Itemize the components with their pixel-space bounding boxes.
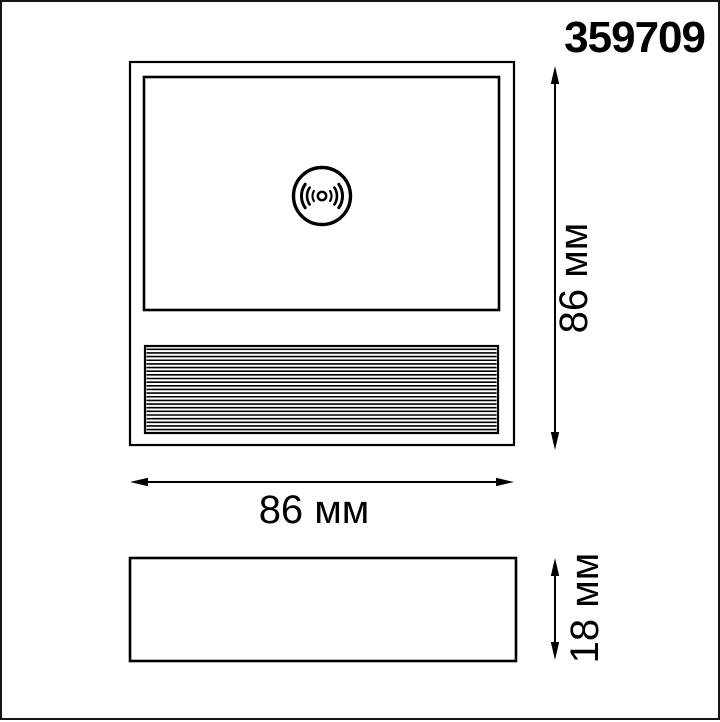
height-arrowhead-bottom bbox=[551, 432, 559, 450]
depth-dimension-arrow bbox=[551, 558, 559, 660]
height-dimension-label: 86 мм bbox=[552, 178, 596, 378]
front-view-inner-panel bbox=[144, 77, 499, 310]
depth-arrowhead-top bbox=[551, 558, 559, 576]
width-arrowhead-right bbox=[496, 478, 514, 486]
side-view-rect bbox=[130, 558, 516, 661]
technical-drawing-canvas: 359709 bbox=[0, 0, 720, 720]
louver-grille bbox=[145, 346, 498, 433]
depth-dimension-label: 18 мм bbox=[563, 508, 607, 708]
width-dimension-arrow bbox=[130, 478, 514, 486]
height-arrowhead-top bbox=[551, 66, 559, 84]
width-arrowhead-left bbox=[130, 478, 148, 486]
depth-arrowhead-bottom bbox=[551, 642, 559, 660]
front-view bbox=[130, 62, 514, 445]
width-dimension-label: 86 мм bbox=[214, 488, 414, 532]
drawing-svg bbox=[2, 2, 720, 722]
side-view bbox=[130, 558, 516, 661]
